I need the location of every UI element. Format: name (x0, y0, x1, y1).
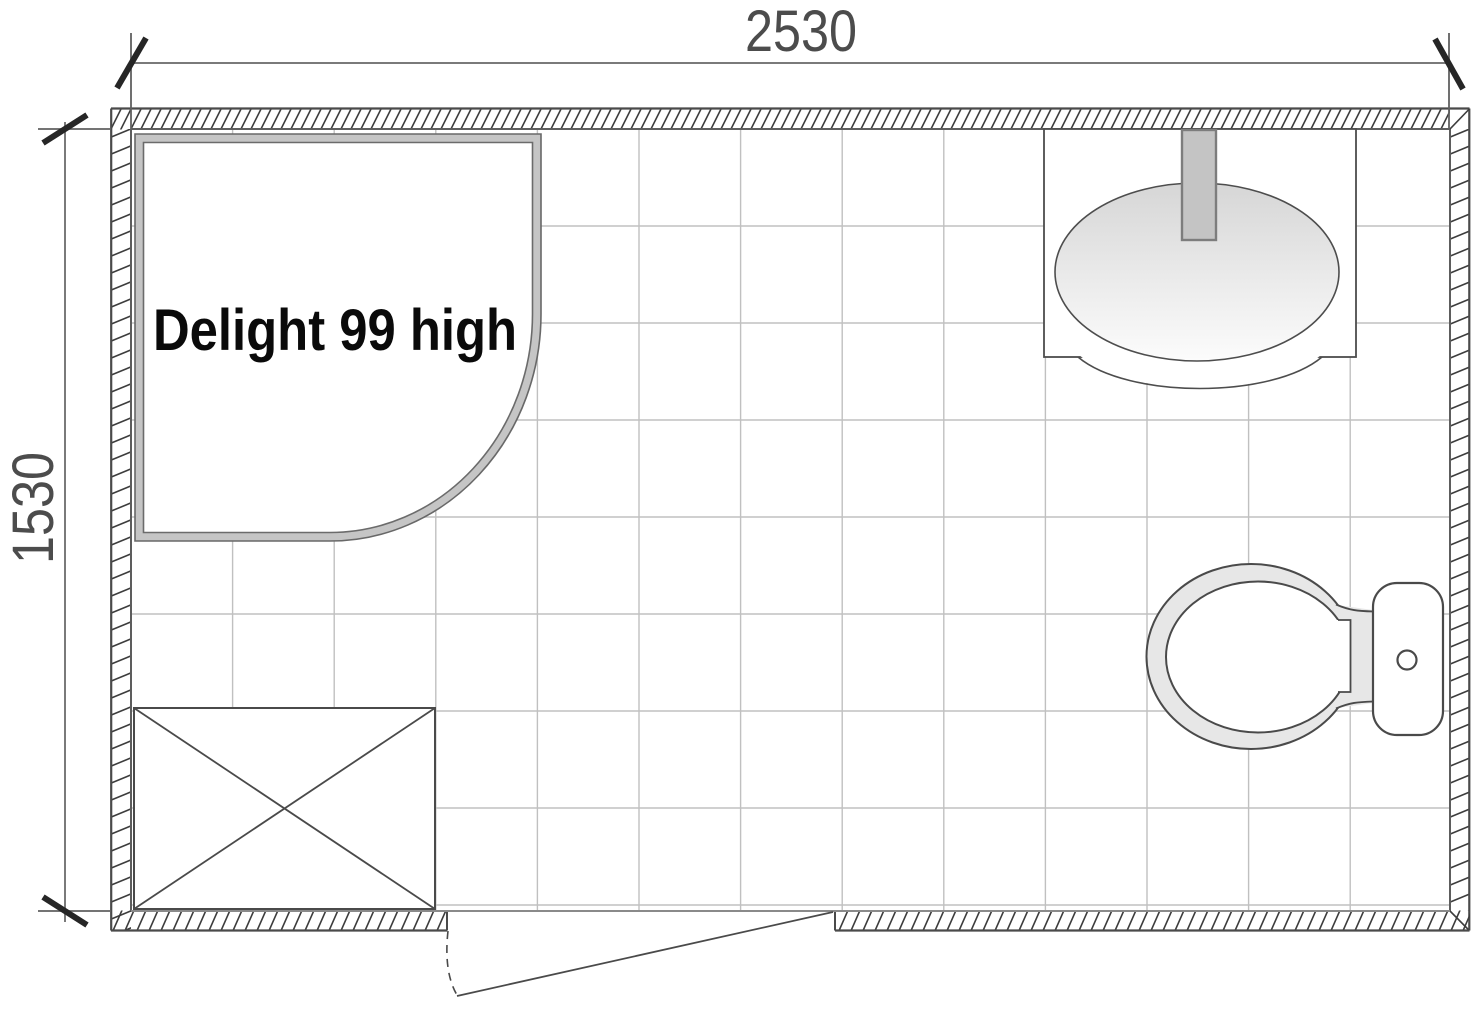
svg-text:2530: 2530 (745, 0, 857, 64)
svg-text:1530: 1530 (1, 452, 66, 564)
svg-text:Delight 99 high: Delight 99 high (153, 298, 517, 363)
